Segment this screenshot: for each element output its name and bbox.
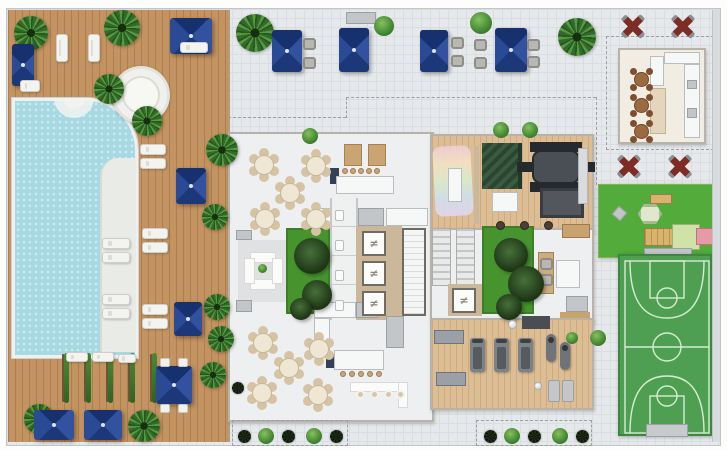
bush-icon — [306, 428, 322, 444]
umbrella-blue-icon — [174, 302, 202, 336]
shrub-icon — [576, 430, 589, 443]
dining-table — [279, 358, 299, 378]
side-counter — [578, 148, 588, 204]
sun-lounger — [88, 34, 100, 62]
palm-tree-icon — [558, 18, 596, 56]
bush-icon — [374, 16, 394, 36]
garden-plant-icon — [496, 294, 522, 320]
elevator: ≠ — [362, 261, 386, 286]
dining-table — [253, 333, 273, 353]
umbrella-red-icon — [665, 152, 695, 182]
basketball-court — [618, 254, 712, 436]
weight-bench — [436, 372, 466, 386]
gym-mat — [562, 380, 574, 402]
lounge-chair — [384, 390, 393, 399]
palm-tree-icon — [202, 204, 228, 230]
deck-chair — [178, 358, 188, 367]
umbrella-red-icon — [618, 12, 648, 42]
armchair — [451, 55, 464, 67]
palm-tree-icon — [132, 106, 162, 136]
meeting-table — [532, 150, 580, 184]
sun-lounger — [102, 294, 130, 305]
elevator-glyph-icon: ≠ — [369, 237, 378, 250]
dining-table — [254, 155, 274, 175]
bar-stool — [340, 371, 346, 377]
zone-boundary — [346, 97, 347, 118]
bathroom-fixture — [335, 240, 344, 251]
treadmill — [518, 338, 533, 372]
deck-chair — [160, 404, 170, 413]
palm-tree-icon — [94, 74, 124, 104]
garden-plant-icon — [290, 298, 312, 320]
floor-plan: ≠≠≠≠ — [0, 0, 727, 450]
treadmill — [494, 338, 509, 372]
dining-table — [634, 72, 649, 87]
service-shaft — [402, 228, 426, 316]
armchair — [451, 37, 464, 49]
bathroom-fixture — [335, 270, 344, 281]
shrub-icon — [282, 430, 295, 443]
sun-lounger — [66, 352, 88, 362]
bathroom-fixture — [335, 300, 344, 311]
bar-stool — [349, 371, 355, 377]
umbrella-blue-icon — [495, 28, 527, 72]
umbrella-blue-icon — [339, 28, 369, 72]
sink — [687, 80, 697, 89]
palm-tree-icon — [128, 410, 160, 442]
armchair — [527, 56, 540, 68]
bush-icon — [258, 428, 274, 444]
deck-chair — [178, 404, 188, 413]
zone-boundary — [596, 97, 597, 185]
exercise-bike — [546, 334, 556, 362]
treadmill — [470, 338, 485, 372]
sink — [687, 108, 697, 118]
lounge-chair — [396, 390, 405, 399]
tiered-seating — [482, 143, 522, 189]
play-bench — [650, 194, 672, 204]
sun-lounger — [56, 34, 68, 62]
dining-table — [255, 209, 275, 229]
appliance — [386, 316, 404, 348]
palm-tree-icon — [200, 362, 226, 388]
seat — [566, 296, 588, 312]
exercise-ball — [508, 320, 517, 329]
bush-icon — [493, 122, 509, 138]
lounge-chair — [356, 390, 365, 399]
bar-stool — [358, 371, 364, 377]
palm-tree-icon — [236, 14, 274, 52]
sun-lounger — [118, 354, 136, 363]
armchair — [527, 39, 540, 51]
kids-shelf — [448, 168, 462, 202]
potted-plant-icon — [258, 264, 267, 273]
court-markings — [620, 256, 714, 438]
shrub-icon — [232, 382, 244, 394]
umbrella-blue-icon — [34, 410, 74, 440]
bush-icon — [302, 128, 318, 144]
tv-console — [236, 230, 252, 240]
umbrella-blue-icon — [272, 30, 302, 72]
bush-icon — [470, 12, 492, 34]
dining-table — [309, 339, 329, 359]
palm-tree-icon — [206, 134, 238, 166]
elevator-glyph-icon: ≠ — [459, 294, 468, 307]
shrub-icon — [528, 430, 541, 443]
dining-table — [634, 124, 649, 139]
prep-table — [368, 144, 386, 166]
tv-console — [236, 300, 252, 312]
sun-lounger — [142, 304, 168, 315]
bar-stool — [366, 168, 372, 174]
zone-boundary — [346, 97, 596, 98]
armchair — [474, 39, 487, 51]
wood-bench — [562, 224, 590, 238]
bush-icon — [552, 428, 568, 444]
bar-stool — [358, 168, 364, 174]
sun-lounger — [180, 42, 208, 53]
terrace-console-table — [346, 12, 376, 24]
bathroom-fixture — [335, 210, 344, 221]
garden-plant-icon — [294, 238, 330, 274]
coffee-table — [272, 258, 283, 284]
island-counter — [650, 88, 666, 134]
stove — [358, 208, 384, 226]
pouf — [520, 221, 529, 230]
dining-table — [308, 385, 328, 405]
sun-lounger — [142, 242, 168, 253]
dining-table — [280, 183, 300, 203]
exercise-bike — [560, 342, 570, 370]
armchair — [474, 57, 487, 69]
deck-chair — [160, 358, 170, 367]
gym-mat — [548, 380, 560, 402]
sofa — [244, 258, 255, 284]
umbrella-red-icon — [668, 12, 698, 42]
umbrella-blue-icon — [156, 366, 192, 404]
elevator: ≠ — [362, 231, 386, 256]
island-counter — [650, 56, 664, 86]
perimeter-wall — [712, 10, 720, 442]
sun-lounger — [140, 144, 166, 155]
wood-trim — [560, 312, 590, 318]
exercise-ball — [534, 382, 542, 390]
bar-stool — [367, 371, 373, 377]
wall-counter — [684, 64, 700, 138]
bar-stool — [350, 168, 356, 174]
bar-stool — [342, 168, 348, 174]
bench-press — [434, 330, 464, 344]
umbrella-red-icon — [614, 152, 644, 182]
bar-counter — [336, 176, 394, 194]
pouf — [496, 221, 505, 230]
bush-icon — [590, 330, 606, 346]
shrub-icon — [484, 430, 497, 443]
staircase — [432, 228, 451, 286]
gym-counter — [522, 316, 550, 329]
shrub-icon — [238, 430, 251, 443]
elevator-glyph-icon: ≠ — [369, 267, 378, 280]
sun-lounger — [102, 252, 130, 263]
dining-table — [306, 209, 326, 229]
armchair — [540, 258, 553, 270]
elevator: ≠ — [362, 291, 386, 316]
dining-table — [634, 98, 649, 113]
lounge-chair — [370, 390, 379, 399]
armchair — [303, 57, 316, 69]
sun-lounger — [92, 352, 114, 362]
sun-lounger — [140, 158, 166, 169]
palm-tree-icon — [208, 326, 234, 352]
pouf — [544, 221, 553, 230]
armchair — [303, 38, 316, 50]
wall-counter — [664, 52, 700, 64]
bar-counter — [334, 350, 384, 370]
umbrella-blue-icon — [84, 410, 122, 440]
sun-lounger — [142, 228, 168, 239]
bar-stool — [374, 168, 380, 174]
dining-table — [252, 383, 272, 403]
dining-table — [306, 156, 326, 176]
umbrella-blue-icon — [420, 30, 448, 72]
games-table — [492, 192, 518, 212]
bush-icon — [504, 428, 520, 444]
shrub-icon — [330, 430, 343, 443]
partition-wall — [474, 146, 479, 224]
kitchen-counter — [386, 208, 428, 226]
prep-table — [344, 144, 362, 166]
elevator-glyph-icon: ≠ — [369, 297, 378, 310]
sun-lounger — [102, 308, 130, 319]
elevator: ≠ — [452, 288, 476, 313]
umbrella-blue-icon — [176, 168, 206, 204]
fridge — [326, 354, 334, 368]
bar-stool — [376, 371, 382, 377]
court-bench — [646, 424, 688, 437]
bush-icon — [522, 122, 538, 138]
sun-lounger — [142, 318, 168, 329]
zone-boundary — [228, 117, 346, 118]
palm-tree-icon — [104, 10, 140, 46]
sun-lounger — [102, 238, 130, 249]
staircase — [456, 228, 475, 286]
side-table — [556, 260, 580, 288]
sun-lounger — [20, 80, 40, 92]
palm-tree-icon — [204, 294, 230, 320]
